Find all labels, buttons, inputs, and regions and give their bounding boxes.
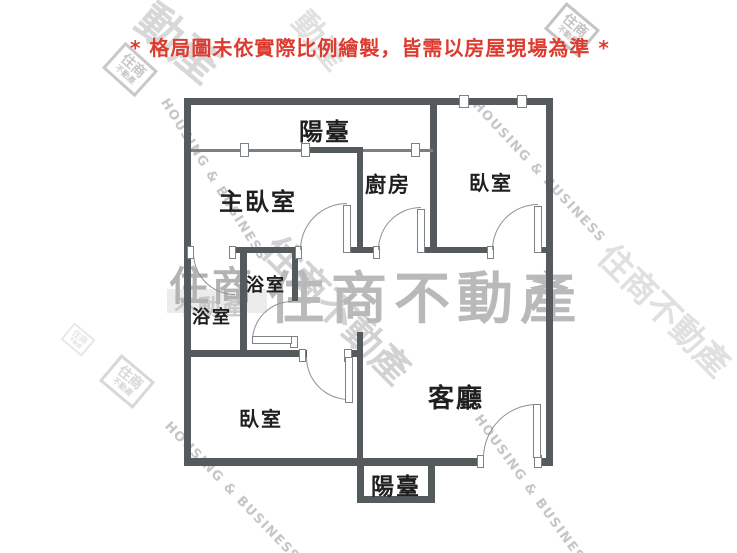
room-label-kitchen: 廚房 bbox=[346, 169, 430, 199]
wall bbox=[184, 98, 191, 466]
room-label-bathroom-upper: 浴室 bbox=[230, 271, 302, 297]
window-line bbox=[363, 149, 433, 152]
door-leaf bbox=[252, 336, 292, 344]
door-leaf bbox=[343, 205, 351, 253]
door-arc bbox=[306, 357, 349, 400]
window-marker bbox=[411, 143, 420, 157]
floor-plan: 陽臺 主臥室 廚房 臥室 浴室 浴室 臥室 客廳 陽臺 bbox=[0, 0, 737, 553]
room-label-master-bedroom: 主臥室 bbox=[198, 182, 318, 217]
wall bbox=[306, 147, 363, 153]
wall bbox=[546, 98, 553, 466]
wall bbox=[240, 253, 247, 350]
door-arc bbox=[492, 204, 538, 250]
door-leaf bbox=[417, 209, 425, 253]
floorplan-screenshot: HOUSING & BUSINESS HOUSING & BUSINESS HO… bbox=[0, 0, 737, 553]
door-jamb bbox=[299, 349, 306, 362]
wall bbox=[357, 147, 363, 253]
window-marker bbox=[517, 95, 527, 108]
disclaimer-text: * 格局圖未依實際比例繪製，皆需以房屋現場為準 * bbox=[130, 32, 610, 61]
door-leaf bbox=[533, 404, 541, 458]
wall bbox=[184, 458, 483, 466]
wall bbox=[430, 105, 437, 253]
room-label-bathroom-lower: 浴室 bbox=[176, 303, 248, 329]
window-line bbox=[191, 149, 310, 152]
door-leaf bbox=[534, 206, 542, 253]
door-arc bbox=[378, 207, 421, 250]
door-arc bbox=[193, 253, 235, 295]
window-marker bbox=[240, 143, 249, 157]
room-label-living-room: 客廳 bbox=[404, 378, 508, 415]
window-marker bbox=[459, 95, 469, 108]
wall bbox=[184, 98, 553, 105]
door-leaf bbox=[345, 357, 353, 403]
wall bbox=[357, 332, 363, 458]
room-label-balcony-top: 陽臺 bbox=[277, 112, 373, 147]
room-label-bedroom-lower: 臥室 bbox=[221, 403, 301, 432]
room-label-bedroom-top-right: 臥室 bbox=[451, 167, 531, 196]
wall bbox=[184, 350, 307, 357]
door-arc bbox=[252, 301, 292, 341]
room-label-balcony-bottom: 陽臺 bbox=[348, 467, 444, 501]
